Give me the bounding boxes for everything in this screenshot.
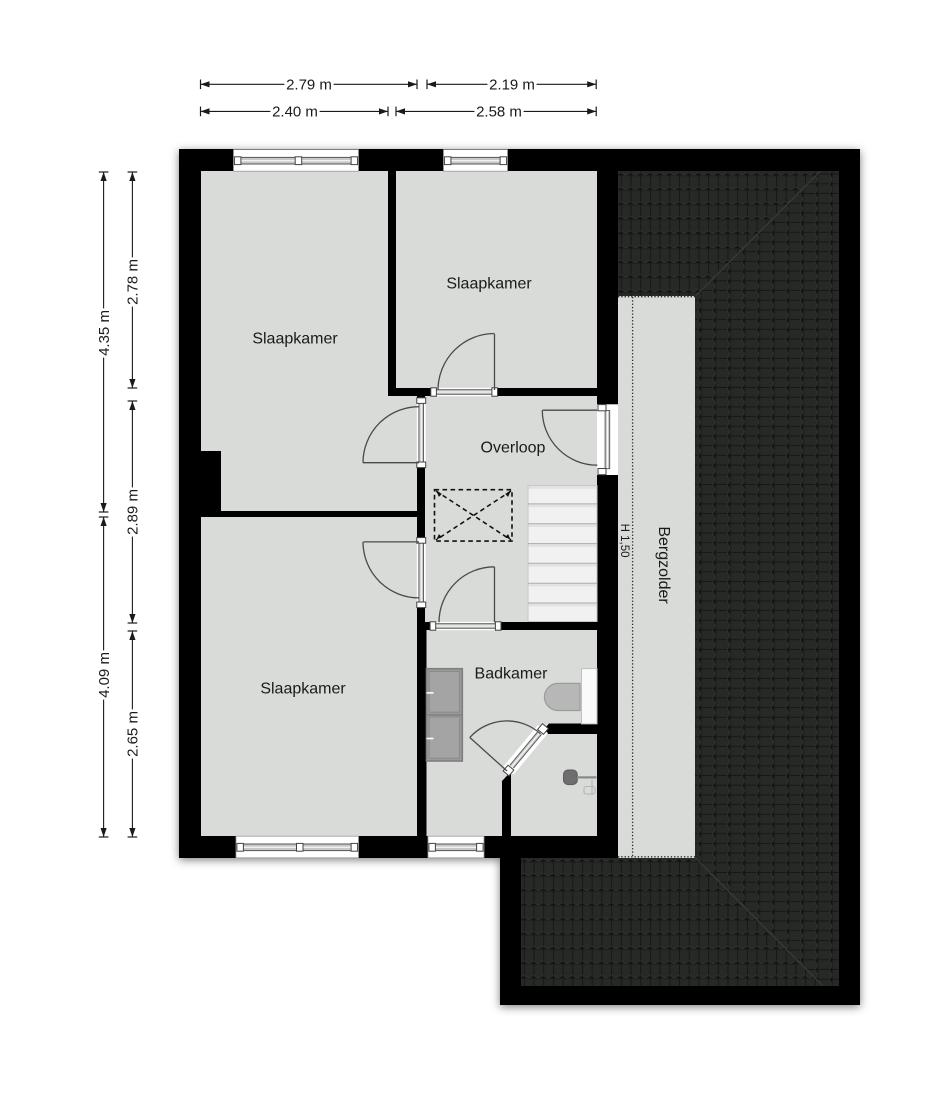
svg-text:2.19 m: 2.19 m xyxy=(489,77,535,94)
svg-text:Bergzolder: Bergzolder xyxy=(655,526,672,604)
svg-text:Slaapkamer: Slaapkamer xyxy=(446,276,532,293)
svg-text:Badkamer: Badkamer xyxy=(475,666,549,683)
svg-text:4.35 m: 4.35 m xyxy=(96,310,113,356)
svg-text:H 1,50: H 1,50 xyxy=(618,524,630,558)
svg-text:Slaapkamer: Slaapkamer xyxy=(252,331,338,348)
svg-text:Overloop: Overloop xyxy=(481,440,546,457)
svg-text:2.79 m: 2.79 m xyxy=(286,77,332,94)
svg-text:2.40 m: 2.40 m xyxy=(272,104,318,121)
svg-text:2.58 m: 2.58 m xyxy=(476,104,522,121)
svg-text:Slaapkamer: Slaapkamer xyxy=(260,681,346,698)
svg-text:2.89 m: 2.89 m xyxy=(125,489,142,535)
svg-text:4.09 m: 4.09 m xyxy=(96,652,113,698)
svg-text:2.65 m: 2.65 m xyxy=(125,711,142,757)
svg-text:2.78 m: 2.78 m xyxy=(125,259,142,305)
